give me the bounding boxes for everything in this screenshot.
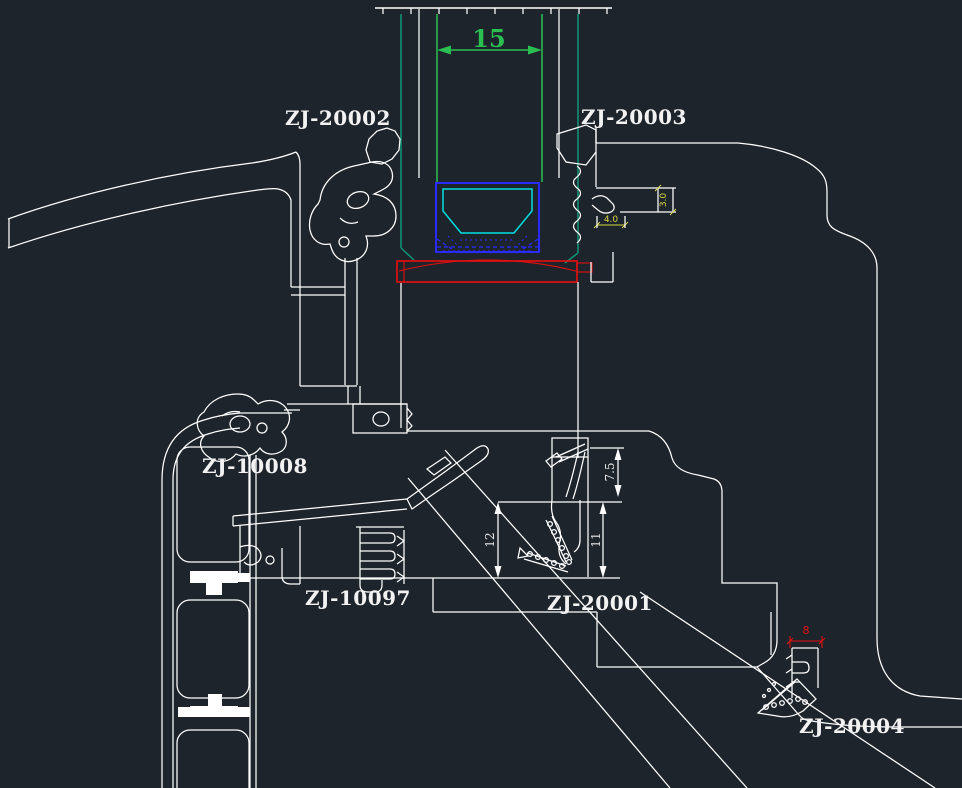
dimension-15-text: 15 <box>472 24 505 53</box>
part-label-zj-20002: ZJ-20002 <box>285 106 391 130</box>
frame-outer-contour <box>596 143 962 727</box>
sash-t-connector <box>287 386 412 433</box>
dimension-12: 12 <box>483 502 502 578</box>
latch-zj-20001 <box>433 438 597 667</box>
gasket-zj-20002 <box>309 128 400 262</box>
hatched-bulb-zj-20002 <box>366 128 400 164</box>
glass-clamp-red <box>397 260 592 282</box>
glazing-bead-step <box>591 252 613 282</box>
dimension-11-text: 11 <box>589 532 603 547</box>
part-label-zj-20004: ZJ-20004 <box>799 714 905 738</box>
sash-bottom-chambers <box>228 526 620 584</box>
dimension-3-0: 3.0 <box>596 185 676 215</box>
setting-block <box>436 183 539 252</box>
dimension-4-0: 4.0 <box>594 215 628 228</box>
part-label-zj-10008: ZJ-10008 <box>202 454 308 478</box>
sash-profile-left <box>8 152 578 458</box>
cad-viewport[interactable]: 15 <box>0 0 962 788</box>
part-label-zj-20003: ZJ-20003 <box>581 105 687 129</box>
dimension-3-0-text: 3.0 <box>659 193 669 208</box>
part-label-zj-10097: ZJ-10097 <box>305 586 411 610</box>
thermal-break-block-upper <box>190 571 238 595</box>
dimension-8: 8 <box>787 624 825 648</box>
dimension-4-0-text: 4.0 <box>604 215 619 225</box>
gasket-zj-10008 <box>197 394 300 461</box>
dimension-12-text: 12 <box>483 532 497 547</box>
dimension-7-5: 7.5 <box>590 448 624 497</box>
dimension-8-text: 8 <box>803 624 810 637</box>
gasket-zj-10097 <box>356 527 404 592</box>
cad-drawing: 15 <box>0 0 962 788</box>
dimension-7-5-text: 7.5 <box>603 462 617 481</box>
part-label-zj-20001: ZJ-20001 <box>547 591 653 615</box>
dimension-15: 15 <box>437 14 542 182</box>
